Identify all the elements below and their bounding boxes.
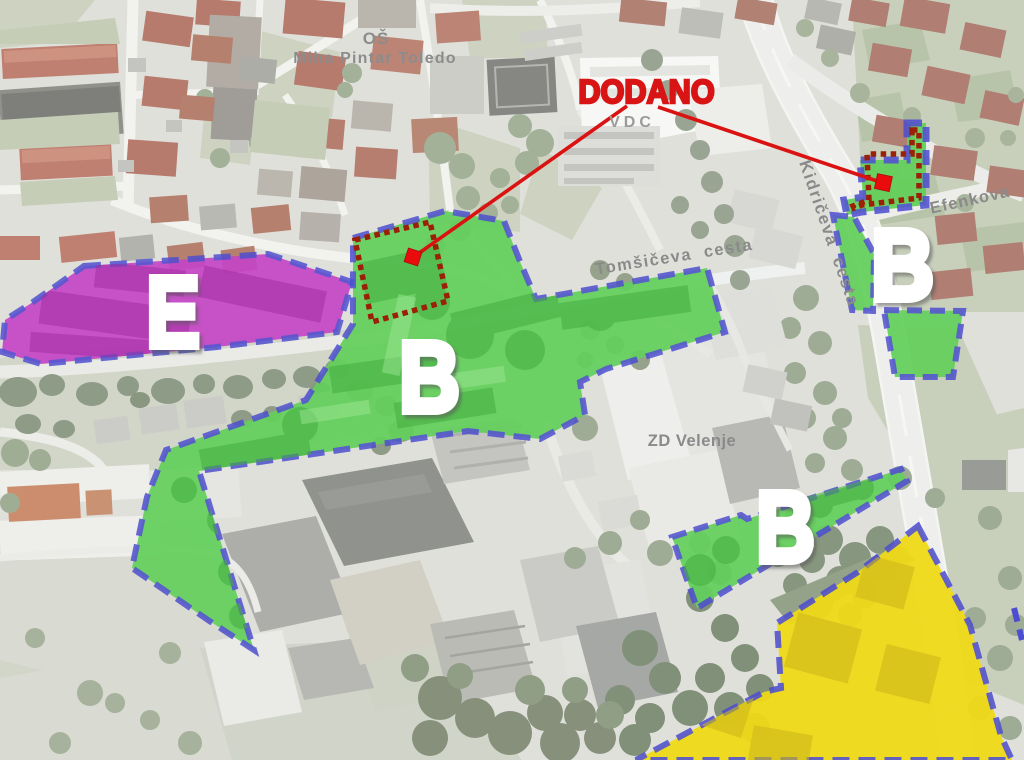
svg-text:B: B <box>871 209 934 321</box>
svg-text:VDC: VDC <box>609 114 655 131</box>
svg-text:B: B <box>399 321 460 434</box>
svg-text:Miha Pintar Toledo: Miha Pintar Toledo <box>293 50 457 67</box>
svg-text:DODANO: DODANO <box>578 73 714 110</box>
svg-text:ZD Velenje: ZD Velenje <box>648 432 736 450</box>
svg-text:OŠ: OŠ <box>363 29 390 48</box>
svg-text:E: E <box>146 257 199 369</box>
svg-text:B: B <box>756 472 814 583</box>
